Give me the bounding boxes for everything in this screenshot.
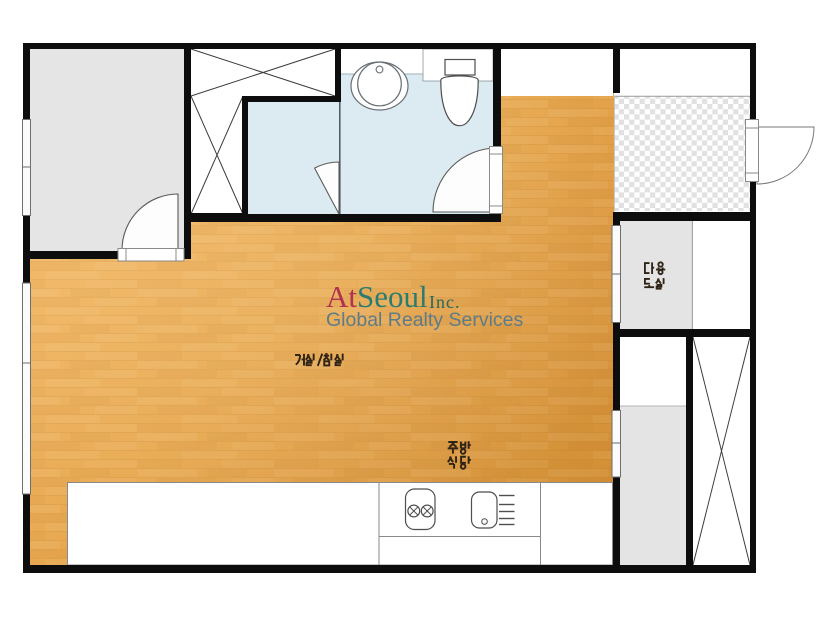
svg-text:Global Realty Services: Global Realty Services <box>326 309 523 331</box>
